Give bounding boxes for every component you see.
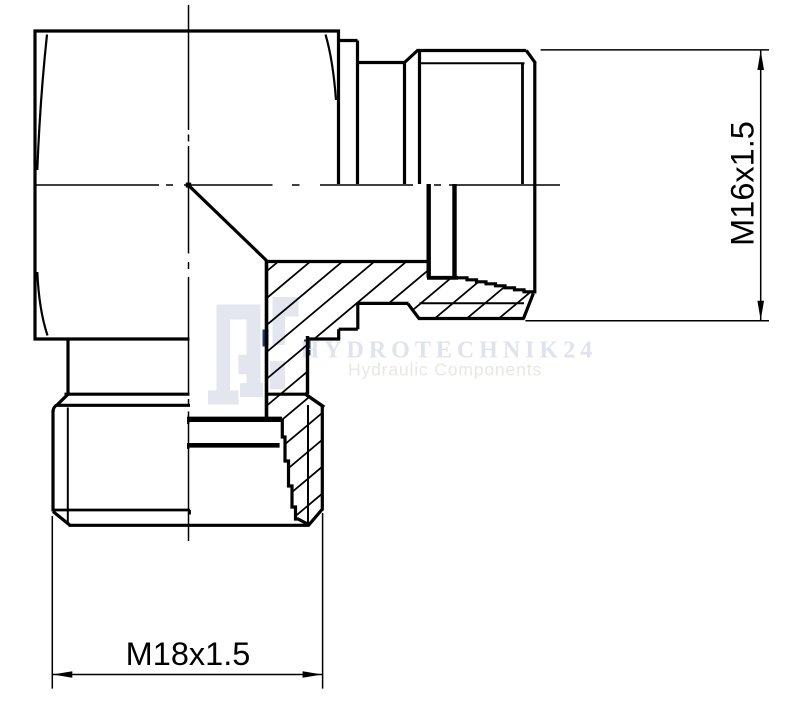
svg-text:Hydraulic Components: Hydraulic Components <box>348 360 542 380</box>
svg-text:M16x1.5: M16x1.5 <box>725 121 761 246</box>
svg-text:M18x1.5: M18x1.5 <box>126 636 251 672</box>
